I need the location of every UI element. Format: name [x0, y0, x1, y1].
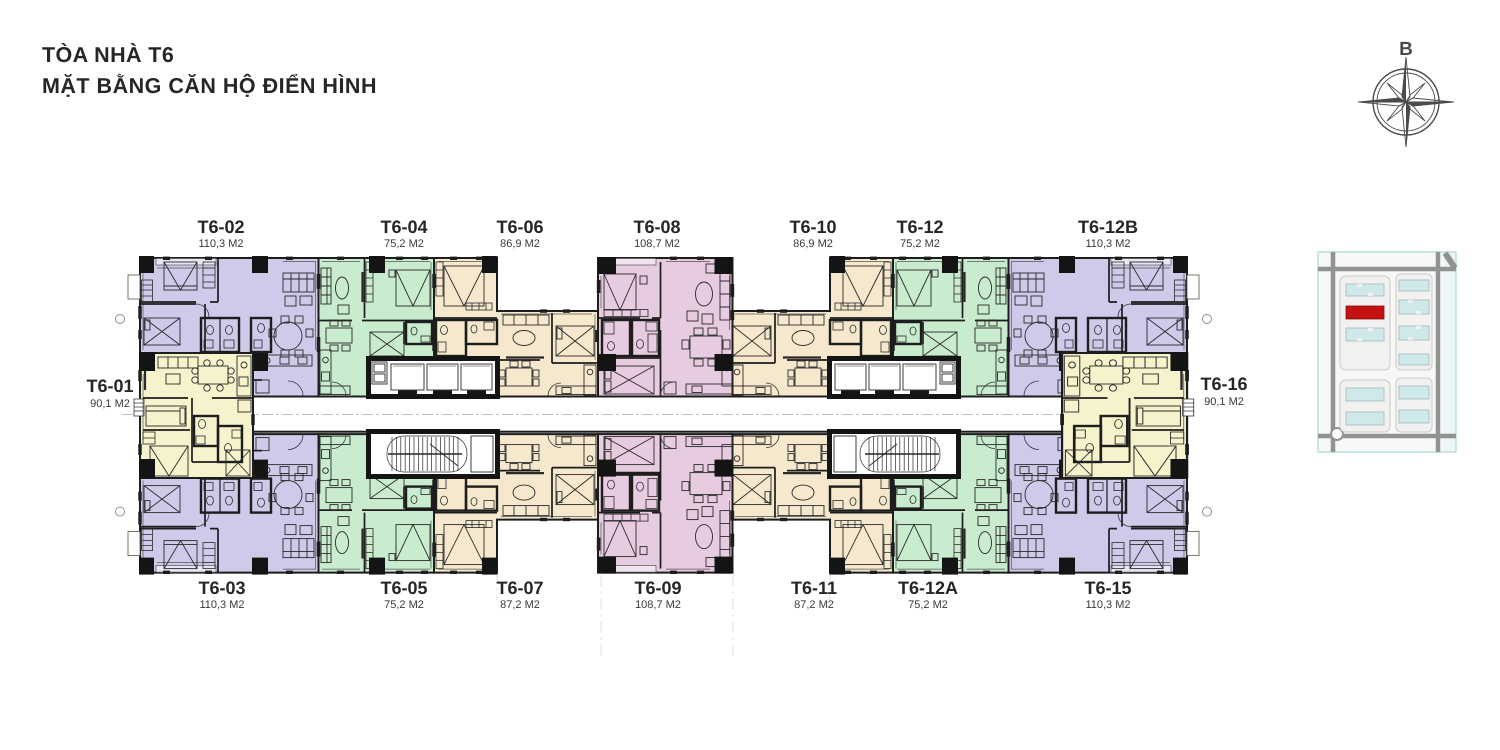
svg-text:86,9 M2: 86,9 M2: [500, 238, 540, 250]
svg-text:B: B: [1399, 39, 1413, 60]
svg-text:75,2 M2: 75,2 M2: [384, 238, 424, 250]
svg-text:75,2 M2: 75,2 M2: [384, 599, 424, 611]
svg-text:110,3 M2: 110,3 M2: [1085, 238, 1130, 250]
svg-text:T6-04: T6-04: [380, 217, 427, 237]
svg-text:110,3 M2: 110,3 M2: [198, 238, 243, 250]
svg-text:MẶT BẰNG CĂN HỘ ĐIỂN HÌNH: MẶT BẰNG CĂN HỘ ĐIỂN HÌNH: [42, 73, 377, 98]
svg-text:110,3 M2: 110,3 M2: [199, 599, 244, 611]
svg-text:T6-03: T6-03: [198, 578, 245, 598]
svg-text:75,2 M2: 75,2 M2: [908, 599, 948, 611]
svg-text:75,2 M2: 75,2 M2: [900, 238, 940, 250]
svg-text:T6-12B: T6-12B: [1078, 217, 1138, 237]
svg-text:T6-07: T6-07: [496, 578, 543, 598]
svg-text:T6-10: T6-10: [789, 217, 836, 237]
svg-text:108,7 M2: 108,7 M2: [635, 599, 681, 611]
svg-text:T6-15: T6-15: [1084, 578, 1131, 598]
svg-text:90,1 M2: 90,1 M2: [90, 398, 130, 410]
svg-text:T6-11: T6-11: [791, 578, 837, 598]
svg-text:TÒA NHÀ T6: TÒA NHÀ T6: [42, 42, 174, 67]
svg-text:T6-06: T6-06: [496, 217, 543, 237]
svg-text:110,3 M2: 110,3 M2: [1085, 599, 1130, 611]
svg-text:T6-02: T6-02: [197, 217, 244, 237]
svg-text:87,2 M2: 87,2 M2: [500, 599, 540, 611]
svg-text:T6-09: T6-09: [634, 578, 681, 598]
svg-text:108,7 M2: 108,7 M2: [634, 238, 680, 250]
svg-text:87,2 M2: 87,2 M2: [794, 599, 834, 611]
svg-text:T6-08: T6-08: [633, 217, 680, 237]
svg-text:90,1 M2: 90,1 M2: [1204, 396, 1244, 408]
svg-text:T6-12: T6-12: [896, 217, 943, 237]
svg-text:T6-16: T6-16: [1200, 374, 1247, 394]
svg-text:T6-01: T6-01: [86, 376, 133, 396]
svg-text:86,9 M2: 86,9 M2: [793, 238, 833, 250]
svg-text:T6-05: T6-05: [380, 578, 427, 598]
svg-text:T6-12A: T6-12A: [898, 578, 958, 598]
